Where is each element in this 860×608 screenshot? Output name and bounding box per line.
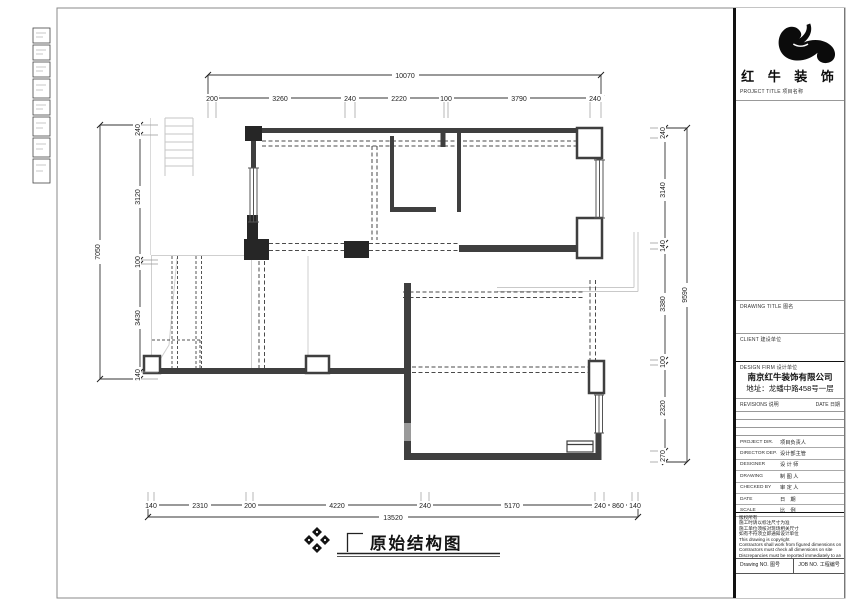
svg-text:5170: 5170 <box>504 503 520 510</box>
svg-text:13520: 13520 <box>383 515 403 522</box>
svg-text:3380: 3380 <box>660 296 667 312</box>
svg-text:7050: 7050 <box>95 244 102 260</box>
drawing-title-label: DRAWING TITLE 图名 <box>736 303 844 310</box>
svg-text:3260: 3260 <box>272 96 288 103</box>
dimension-text-bottom: 13520 140 2310 200 4220 240 5170 240 860… <box>143 501 643 522</box>
light-construction-lines <box>151 118 639 370</box>
row-director-dep: DIRECTOR DEP.设计部主管 <box>736 448 844 459</box>
svg-text:240: 240 <box>344 96 356 103</box>
revision-row <box>736 435 844 436</box>
svg-text:100: 100 <box>440 96 452 103</box>
svg-text:200: 200 <box>206 96 218 103</box>
margin-frame-boxes <box>33 28 50 183</box>
divider <box>736 300 844 301</box>
row-drawing: DRAWING制 图 人 <box>736 471 844 482</box>
diamond-logo-icon <box>304 527 330 553</box>
job-no-label: JOB NO. 工程编号 <box>794 559 839 573</box>
revision-row <box>736 427 844 428</box>
revisions-date-label: DATE 日期 <box>816 401 840 408</box>
svg-text:2320: 2320 <box>660 400 667 416</box>
number-row: Drawing NO. 图号 JOB NO. 工程编号 <box>736 558 844 574</box>
svg-text:240: 240 <box>660 127 667 139</box>
divider <box>736 333 844 334</box>
svg-text:2220: 2220 <box>391 96 407 103</box>
revisions-header: REVISIONS 说明 DATE 日期 <box>736 400 844 408</box>
personnel-rows: PROJECT DIR.项目负责人 DIRECTOR DEP.设计部主管 DES… <box>736 437 844 517</box>
svg-text:240: 240 <box>135 124 142 136</box>
svg-text:270: 270 <box>660 450 667 462</box>
svg-text:4220: 4220 <box>329 503 345 510</box>
cad-sheet: 10070 200 3260 240 2220 100 3790 240 135… <box>0 0 860 608</box>
svg-text:140: 140 <box>629 503 641 510</box>
windows <box>248 160 605 433</box>
brand-name: 红 牛 装 饰 <box>736 66 844 85</box>
svg-text:140: 140 <box>135 369 142 381</box>
client-label: CLIENT 建设单位 <box>736 336 844 343</box>
row-designer: DESIGNER设 计 师 <box>736 460 844 471</box>
design-firm-label: DESIGN FIRM 设计单位 <box>736 364 844 371</box>
sheet-title: 原始结构图 <box>370 533 463 553</box>
sheet-title-group: 原始结构图 <box>304 527 500 557</box>
title-block: 红 牛 装 饰 PROJECT TITLE 项目名称 DRAWING TITLE… <box>733 8 845 598</box>
row-date: DATE日 期 <box>736 494 844 505</box>
svg-text:200: 200 <box>244 503 256 510</box>
dimension-text-right: 9590 240 3140 140 3380 100 2320 270 <box>658 124 689 464</box>
revision-row <box>736 411 844 412</box>
svg-text:860: 860 <box>612 503 624 510</box>
divider <box>736 398 844 399</box>
company-name: 南京红牛装饰有限公司 <box>736 371 844 383</box>
svg-text:3140: 3140 <box>660 182 667 198</box>
bull-logo-icon <box>754 22 860 66</box>
project-title-label: PROJECT TITLE 项目名称 <box>736 88 844 95</box>
beam-dashed-lines <box>259 141 596 373</box>
svg-text:140: 140 <box>660 240 667 252</box>
copyright-notes: 版权所有 施工时请以标注尺寸为准 施工单位须核对现场相关尺寸 如有不符须立即通知… <box>736 513 844 558</box>
divider <box>736 361 844 362</box>
svg-text:10070: 10070 <box>395 73 415 80</box>
revision-row <box>736 419 844 420</box>
divider <box>736 100 844 101</box>
company-address: 地址：龙蟠中路458号一层 <box>736 383 844 394</box>
door-marker <box>404 423 411 441</box>
svg-text:9590: 9590 <box>682 287 689 303</box>
floor-plan-svg: 10070 200 3260 240 2220 100 3790 240 135… <box>0 0 860 608</box>
svg-text:240: 240 <box>589 96 601 103</box>
balcony-dashed-lines <box>152 256 202 370</box>
svg-text:240: 240 <box>419 503 431 510</box>
svg-text:3430: 3430 <box>135 310 142 326</box>
svg-text:3790: 3790 <box>511 96 527 103</box>
svg-text:100: 100 <box>660 356 667 368</box>
row-checked-by: CHECKED BY审 定 人 <box>736 483 844 494</box>
revisions-label: REVISIONS 说明 <box>740 401 779 408</box>
svg-text:240: 240 <box>594 503 606 510</box>
drawing-no-label: Drawing NO. 图号 <box>736 559 794 573</box>
svg-text:2310: 2310 <box>192 503 208 510</box>
svg-text:3120: 3120 <box>135 189 142 205</box>
svg-text:100: 100 <box>135 256 142 268</box>
svg-text:140: 140 <box>145 503 157 510</box>
columns <box>144 126 604 441</box>
row-project-dir: PROJECT DIR.项目负责人 <box>736 437 844 448</box>
